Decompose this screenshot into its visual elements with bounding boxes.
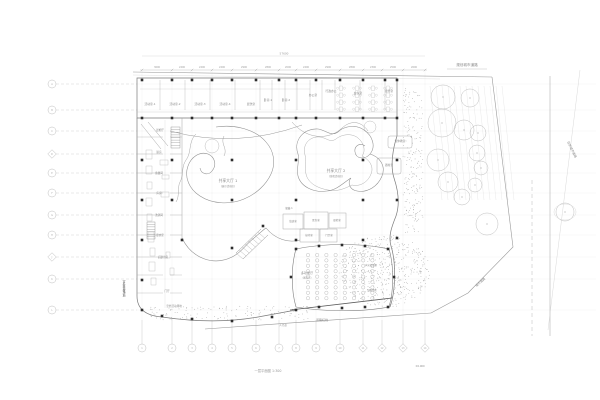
- stipple-dot: [175, 312, 176, 313]
- stipple-dot: [406, 266, 407, 267]
- stipple-dot: [416, 185, 417, 186]
- stipple-dot: [363, 300, 364, 301]
- room-labels: 活动室-1活动室-2活动室-3活动室-4盥洗室卧室-1卧室-2办公室行政办公会议…: [144, 89, 405, 293]
- stipple-dot: [382, 292, 383, 293]
- stipple-dot: [251, 314, 252, 315]
- stipple-dot: [413, 176, 414, 177]
- stipple-dot: [387, 299, 388, 300]
- stipple-dot: [366, 257, 367, 258]
- seat: [343, 297, 346, 300]
- stipple-dot: [418, 231, 419, 232]
- stipple-dot: [421, 150, 422, 151]
- stipple-dot: [200, 309, 201, 310]
- stipple-dot: [364, 250, 365, 251]
- stipple-dot: [414, 220, 415, 221]
- column: [141, 279, 144, 282]
- stipple-dot: [408, 125, 409, 126]
- room-label: 接待室: [305, 233, 313, 237]
- stipple-dot: [359, 261, 360, 262]
- stipple-dot: [403, 137, 404, 138]
- stipple-dot: [353, 257, 354, 258]
- stipple-dot: [408, 189, 409, 190]
- left-wing-and-bottom-outline: [137, 118, 296, 321]
- dim-value: 2400: [199, 66, 206, 69]
- stipple-dot: [416, 175, 417, 176]
- stipple-dot: [414, 205, 415, 206]
- stipple-dot: [413, 126, 414, 127]
- stipple-dot: [414, 204, 415, 205]
- stipple-dot: [401, 292, 402, 293]
- stipple-dot: [394, 293, 395, 294]
- stipple-dot: [406, 295, 407, 296]
- seat: [352, 264, 355, 267]
- floor-plan-page: ABCDEFGHJKL1234567891011121314 360024002…: [0, 0, 600, 400]
- column: [171, 159, 174, 162]
- stipple-dot: [154, 308, 155, 309]
- stipple-dot: [407, 157, 408, 158]
- stipple-dot: [194, 309, 195, 310]
- kitchen-equipment: [147, 182, 152, 189]
- stipple-dot: [184, 314, 185, 315]
- stipple-dot: [401, 280, 402, 281]
- stipple-dot: [395, 298, 396, 299]
- stipple-dot: [412, 173, 413, 174]
- stipple-dot: [396, 304, 397, 305]
- stipple-dot: [390, 274, 391, 275]
- stipple-dot: [170, 309, 171, 310]
- figure-title: 一层平面图 1:300: [254, 368, 281, 373]
- stipple-dot: [380, 244, 381, 245]
- seat: [362, 286, 365, 289]
- stipple-dot: [404, 266, 405, 267]
- stipple-dot: [226, 310, 227, 311]
- stipple-dot: [408, 276, 409, 277]
- stipple-dot: [411, 274, 412, 275]
- stipple-dot: [419, 151, 420, 152]
- stipple-dot: [403, 100, 404, 101]
- kitchen-equipment: [146, 166, 152, 174]
- stipple-dot: [417, 133, 418, 134]
- stipple-dot: [410, 208, 411, 209]
- stipple-dot: [380, 265, 381, 266]
- stipple-dot: [388, 283, 389, 284]
- road-label-top: 规划城市道路: [456, 62, 478, 67]
- stipple-dot: [373, 298, 374, 299]
- stipple-dot: [406, 164, 407, 165]
- seat: [343, 253, 346, 256]
- stipple-dot: [365, 253, 366, 254]
- column: [295, 309, 298, 312]
- column: [255, 117, 258, 120]
- stipple-dot: [381, 261, 382, 262]
- auditorium-label: 多功能厅: [301, 270, 313, 275]
- tree-center-dot: [437, 159, 438, 160]
- room-label: 盥洗室: [247, 102, 256, 106]
- stipple-dot: [423, 264, 424, 265]
- stipple-dot: [408, 130, 409, 131]
- stipple-dot: [409, 129, 410, 130]
- stipple-dot: [398, 252, 399, 253]
- stipple-dot: [420, 270, 421, 271]
- stipple-dot: [414, 101, 415, 102]
- stipple-dot: [360, 252, 361, 253]
- stipple-dot: [342, 276, 343, 277]
- room-label: 晨检厅: [156, 128, 164, 132]
- stipple-dot: [206, 317, 207, 318]
- stipple-dot: [378, 244, 379, 245]
- hall-bottom-wavy-wall: [182, 228, 300, 261]
- road-label-right: 现状城市道路: [566, 140, 578, 158]
- stipple-dot: [383, 293, 384, 294]
- stipple-dot: [424, 264, 425, 265]
- stipple-dot: [403, 195, 404, 196]
- kitchen-equipment: [150, 248, 155, 256]
- tree-center-dot: [477, 132, 478, 133]
- stipple-dot: [391, 240, 392, 241]
- column: [362, 199, 365, 202]
- column: [315, 79, 318, 82]
- blob-1-squiggle: [176, 134, 225, 202]
- dim-value: 3600: [154, 66, 161, 69]
- column: [362, 239, 365, 242]
- stipple-dot: [358, 273, 359, 274]
- stipple-dot: [426, 269, 427, 270]
- stipple-dot: [393, 301, 394, 302]
- stipple-dot: [405, 96, 406, 97]
- stipple-dot: [398, 285, 399, 286]
- stipple-dot: [369, 281, 370, 282]
- stipple-dot: [395, 278, 396, 279]
- stipple-dot: [186, 310, 187, 311]
- stipple-dot: [302, 314, 303, 315]
- stipple-dot: [226, 306, 227, 307]
- seat: [325, 275, 328, 278]
- stipple-dot: [363, 251, 364, 252]
- axis-label: 4: [211, 347, 213, 350]
- stipple-dot: [409, 210, 410, 211]
- seat: [343, 291, 346, 294]
- stipple-dot: [190, 315, 191, 316]
- seat: [362, 253, 365, 256]
- stipple-dot: [424, 279, 425, 280]
- stipple-dot: [150, 307, 151, 308]
- stipple-dot: [163, 314, 164, 315]
- stipple-dot: [409, 102, 410, 103]
- tree-center-dot: [447, 181, 448, 182]
- tree-center-dot: [463, 129, 464, 130]
- stipple-dot: [410, 215, 411, 216]
- stipple-dot: [398, 263, 399, 264]
- column: [362, 159, 365, 162]
- seat: [325, 291, 328, 294]
- stipple-dot: [350, 252, 351, 253]
- stipple-dot: [186, 308, 187, 309]
- stipple-dot: [419, 165, 420, 166]
- stipple-dot: [377, 252, 378, 253]
- column: [364, 306, 367, 309]
- stipple-dot: [342, 280, 343, 281]
- stipple-dot: [365, 291, 366, 292]
- stipple-dot: [421, 290, 422, 291]
- stipple-dot: [418, 132, 419, 133]
- stipple-dot: [378, 274, 379, 275]
- stipple-dot: [412, 242, 413, 243]
- stipple-dot: [382, 284, 383, 285]
- stipple-dot: [357, 269, 358, 270]
- stipple-dot: [358, 255, 359, 256]
- stipple-dot: [418, 161, 419, 162]
- stipple-dot: [417, 190, 418, 191]
- stipple-dot: [422, 266, 423, 267]
- dim-value: 2600: [411, 66, 418, 69]
- stipple-dot: [418, 248, 419, 249]
- dim-value: 2400: [303, 66, 310, 69]
- stipple-dot: [360, 285, 361, 286]
- stipple-dot: [407, 135, 408, 136]
- seat: [352, 259, 355, 262]
- stipple-dot: [239, 306, 240, 307]
- stipple-dot: [247, 311, 248, 312]
- stipple-dot: [361, 279, 362, 280]
- stipple-dot: [398, 280, 399, 281]
- stipple-dot: [403, 245, 404, 246]
- stipple-dot: [361, 257, 362, 258]
- stipple-dot: [415, 153, 416, 154]
- stipple-dot: [387, 272, 388, 273]
- seat: [334, 275, 337, 278]
- column: [341, 307, 344, 310]
- chair: [343, 87, 345, 89]
- stipple-dot: [369, 260, 370, 261]
- stipple-dot: [410, 269, 411, 270]
- column: [339, 117, 342, 120]
- stipple-dot: [388, 269, 389, 270]
- stipple-dot: [416, 176, 417, 177]
- center-rooms: [283, 136, 412, 242]
- seat: [325, 270, 328, 273]
- stipple-dot: [385, 259, 386, 260]
- stipple-dot: [359, 253, 360, 254]
- stipple-dot: [369, 283, 370, 284]
- stipple-dot: [382, 292, 383, 293]
- stipple-dot: [404, 183, 405, 184]
- dim-value: 2900: [325, 66, 332, 69]
- stipple-dot: [414, 259, 415, 260]
- stipple-dot: [418, 219, 419, 220]
- stipple-dot: [261, 319, 262, 320]
- stipple-dot: [374, 283, 375, 284]
- stipple-dot: [411, 187, 412, 188]
- room-label: 更衣室: [156, 233, 164, 237]
- seat: [362, 297, 365, 300]
- room-label: 后勤用房: [158, 255, 169, 259]
- planting-line: [460, 86, 472, 200]
- stipple-dot: [428, 271, 429, 272]
- stipple-dot: [389, 265, 390, 266]
- stipple-dot: [409, 134, 410, 135]
- axis-label: 13: [402, 347, 405, 350]
- stipple-dot: [423, 259, 424, 260]
- stipple-dot: [370, 256, 371, 257]
- blob-2-inner: [304, 135, 372, 191]
- seat: [343, 286, 346, 289]
- stipple-dot: [386, 284, 387, 285]
- stipple-dot: [412, 205, 413, 206]
- stipple-dot: [398, 277, 399, 278]
- axis-label: L: [51, 309, 53, 312]
- stipple-dot: [351, 268, 352, 269]
- seat: [343, 259, 346, 262]
- stipple-dot: [412, 252, 413, 253]
- stipple-dot: [408, 252, 409, 253]
- tree-center-dot: [476, 152, 477, 153]
- stipple-dot: [408, 245, 409, 246]
- stipple-dot: [421, 276, 422, 277]
- boundary-polyline: [431, 77, 513, 313]
- stipple-dot: [376, 281, 377, 282]
- stipple-dot: [416, 213, 417, 214]
- room-label: 门厅: [164, 289, 170, 293]
- stipple-dot: [396, 300, 397, 301]
- seat: [371, 297, 374, 300]
- stipple-dot: [422, 215, 423, 216]
- stipple-dot: [401, 298, 402, 299]
- stipple-dot: [404, 244, 405, 245]
- stipple-dot: [391, 264, 392, 265]
- stipple-dot: [160, 319, 161, 320]
- stipple-dot: [349, 287, 350, 288]
- stipple-dot: [361, 275, 362, 276]
- stipple-dot: [397, 277, 398, 278]
- outdoor-vertical-label: 室外器械场地: [122, 279, 126, 297]
- stipple-dot: [367, 303, 368, 304]
- stipple-dot: [421, 187, 422, 188]
- stipple-dot: [217, 319, 218, 320]
- stipple-dot: [420, 287, 421, 288]
- stipple-dot: [423, 262, 424, 263]
- column: [141, 199, 144, 202]
- stipple-dot: [368, 251, 369, 252]
- stipple-dot: [353, 251, 354, 252]
- axis-label: F: [51, 192, 53, 195]
- stipple-dot: [409, 203, 410, 204]
- stipple-dot: [418, 201, 419, 202]
- stipple-dot: [405, 279, 406, 280]
- stipple-dot: [403, 258, 404, 259]
- chair: [384, 94, 386, 96]
- stipple-dot: [422, 113, 423, 114]
- stipple-dot: [355, 248, 356, 249]
- stipple-dot: [350, 255, 351, 256]
- stipple-dot: [393, 235, 394, 236]
- room-label: 活动室-1: [144, 102, 155, 106]
- dim-value: 2300: [370, 66, 377, 69]
- kitchen-equipment: [160, 160, 168, 165]
- stipple-dot: [419, 95, 420, 96]
- stipple-dot: [409, 94, 410, 95]
- stipple-dot: [368, 286, 369, 287]
- stipple-dot: [405, 100, 406, 101]
- stipple-dot: [402, 243, 403, 244]
- column: [387, 248, 390, 251]
- stipple-dot: [399, 269, 400, 270]
- stipple-dot: [411, 160, 412, 161]
- stipple-dot: [293, 311, 294, 312]
- stipple-dot: [421, 260, 422, 261]
- column: [295, 159, 298, 162]
- stipple-dot: [177, 312, 178, 313]
- axis-label: G: [51, 214, 53, 217]
- stipple-dot: [406, 201, 407, 202]
- stipple-dot: [416, 138, 417, 139]
- column: [191, 117, 194, 120]
- stipple-dot: [413, 249, 414, 250]
- stipple-dot: [389, 257, 390, 258]
- stipple-dot: [422, 172, 423, 173]
- desk: [372, 107, 375, 112]
- tree-center-dot: [474, 184, 475, 185]
- stipple-dot: [395, 261, 396, 262]
- stipple-dot: [387, 238, 388, 239]
- stipple-dot: [383, 266, 384, 267]
- structural-columns: [141, 79, 399, 323]
- column: [141, 309, 144, 312]
- stipple-dot: [407, 190, 408, 191]
- axis-label: 2: [171, 347, 173, 350]
- stipple-dot: [389, 275, 390, 276]
- stipple-dot: [270, 310, 271, 311]
- stipple-dot: [396, 265, 397, 266]
- stipple-dot: [367, 271, 368, 272]
- stipple-dot: [404, 126, 405, 127]
- stipple-dot: [406, 288, 407, 289]
- seat: [343, 264, 346, 267]
- stipple-dot: [354, 251, 355, 252]
- stipple-dot: [404, 214, 405, 215]
- axis-label: 1: [141, 347, 143, 350]
- seat: [352, 270, 355, 273]
- stipple-dot: [416, 151, 417, 152]
- stipple-dot: [375, 260, 376, 261]
- stipple-dot: [368, 271, 369, 272]
- axis-label: 10: [339, 347, 342, 350]
- stipple-dot: [166, 313, 167, 314]
- chair: [337, 101, 339, 103]
- chair: [359, 87, 361, 89]
- stipple-dot: [346, 249, 347, 250]
- stipple-dot: [421, 128, 422, 129]
- dim-value: 2900: [241, 66, 248, 69]
- stipple-dot: [396, 257, 397, 258]
- stipple-dot: [379, 239, 380, 240]
- column: [231, 247, 234, 250]
- stipple-dot: [197, 308, 198, 309]
- stipple-dot: [405, 296, 406, 297]
- stipple-dot: [363, 246, 364, 247]
- stipple-dot: [389, 278, 390, 279]
- stipple-dot: [223, 312, 224, 313]
- stipple-dot: [413, 290, 414, 291]
- stipple-dot: [392, 239, 393, 240]
- outdoor-ground-label: 室外活动场地: [166, 304, 182, 308]
- desk: [356, 86, 359, 91]
- stipple-dot: [422, 159, 423, 160]
- stipple-dot: [357, 291, 358, 292]
- stipple-dot: [405, 287, 406, 288]
- tree-circles: [427, 85, 574, 235]
- stipple-dot: [389, 294, 390, 295]
- stipple-dot: [186, 316, 187, 317]
